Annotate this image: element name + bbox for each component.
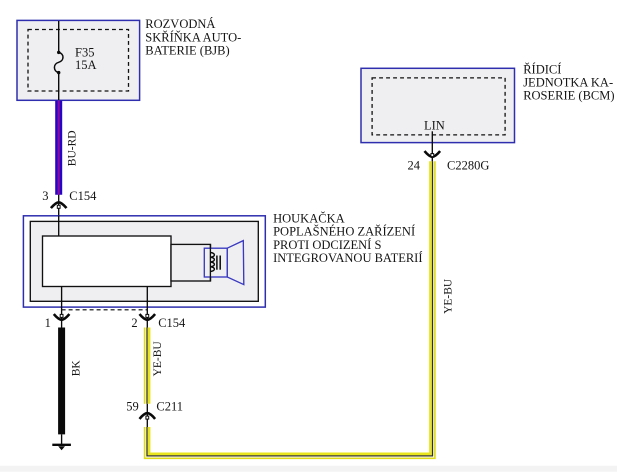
svg-text:POPLAŠNÉHO ZAŘÍZENÍ: POPLAŠNÉHO ZAŘÍZENÍ <box>273 225 415 239</box>
svg-text:SKŘÍŇKA AUTO-: SKŘÍŇKA AUTO- <box>145 30 241 44</box>
svg-text:YE-BU: YE-BU <box>152 341 164 377</box>
svg-text:C2280G: C2280G <box>447 159 489 173</box>
svg-text:PROTI ODCIZENÍ S: PROTI ODCIZENÍ S <box>273 238 381 252</box>
svg-text:JEDNOTKA KA-: JEDNOTKA KA- <box>523 75 613 89</box>
svg-text:INTEGROVANOU BATERIÍ: INTEGROVANOU BATERIÍ <box>273 251 422 265</box>
svg-text:F35: F35 <box>75 45 94 59</box>
svg-text:ROSERIE (BCM): ROSERIE (BCM) <box>523 88 614 102</box>
svg-text:YE-BU: YE-BU <box>443 278 455 314</box>
svg-text:ROZVODNÁ: ROZVODNÁ <box>145 17 215 31</box>
svg-text:1: 1 <box>45 316 51 330</box>
svg-text:C154: C154 <box>158 316 186 330</box>
svg-text:LIN: LIN <box>424 118 445 132</box>
svg-text:ŘÍDICÍ: ŘÍDICÍ <box>523 62 561 76</box>
svg-text:C154: C154 <box>69 189 97 203</box>
svg-text:BU-RD: BU-RD <box>66 130 78 166</box>
svg-text:2: 2 <box>131 316 137 330</box>
svg-text:15A: 15A <box>75 58 97 72</box>
svg-text:59: 59 <box>126 399 139 413</box>
svg-text:BATERIE (BJB): BATERIE (BJB) <box>145 44 229 58</box>
svg-text:C211: C211 <box>156 399 183 413</box>
svg-text:HOUKAČKA: HOUKAČKA <box>273 211 345 225</box>
svg-text:BK: BK <box>70 360 82 377</box>
svg-text:24: 24 <box>408 159 421 173</box>
svg-text:3: 3 <box>42 189 48 203</box>
